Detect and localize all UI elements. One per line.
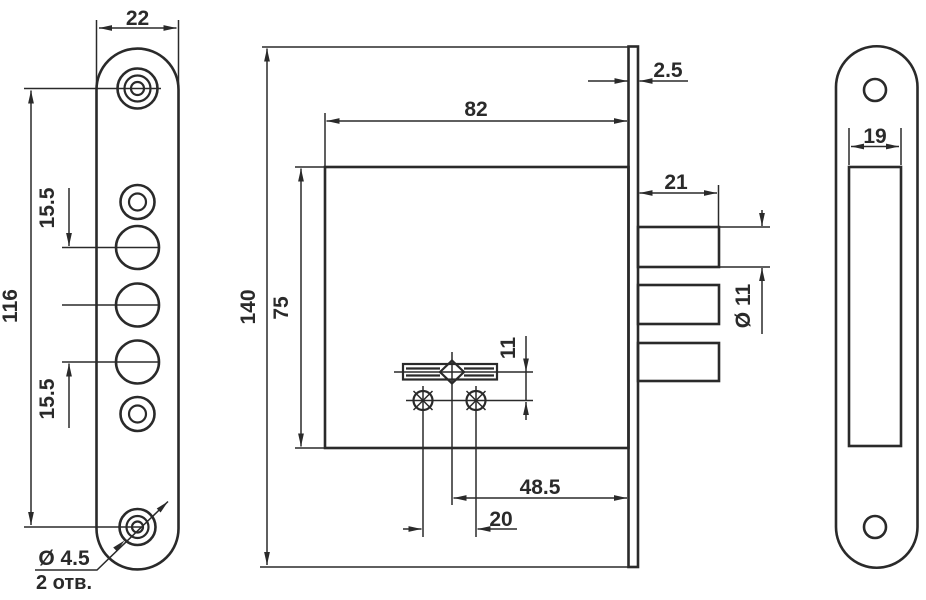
strike-screw-hole-top <box>864 79 886 101</box>
strike-cutout <box>849 167 901 446</box>
note-screw-hole-diameter: Ø 4.5 <box>38 547 90 570</box>
strike-screw-hole-bottom <box>864 516 886 538</box>
bolt-1 <box>638 227 719 267</box>
dim-hole-spacing-upper: 15.5 <box>36 187 59 228</box>
technical-drawing-canvas: 22 116 15.5 15.5 Ø 4.5 2 отв. <box>0 0 926 600</box>
bolt-2 <box>638 285 719 324</box>
faceplate-view: 22 116 15.5 15.5 Ø 4.5 2 отв. <box>0 7 179 594</box>
dim-hole-spacing-lower: 15.5 <box>36 378 59 419</box>
note-screw-hole-count: 2 отв. <box>36 572 92 594</box>
dim-faceplate-hole-span: 116 <box>0 289 22 323</box>
dim-backset: 48.5 <box>520 476 561 499</box>
lock-body-view: 140 75 82 2.5 21 Ø 11 11 48.5 20 <box>237 47 770 568</box>
dim-bolt-diameter: Ø 11 <box>732 283 755 328</box>
dim-case-width: 82 <box>464 98 487 121</box>
bolt-3 <box>638 343 719 381</box>
ring-hole-lower-outer <box>121 397 155 431</box>
strike-plate-view: 19 <box>836 46 918 568</box>
dim-screw-spacing: 20 <box>489 508 512 531</box>
faceplate-edge-strip <box>629 47 639 568</box>
ring-hole-lower-inner <box>129 406 146 423</box>
ring-hole-upper-outer <box>121 185 155 219</box>
dim-cylinder-offset: 11 <box>497 337 520 360</box>
dim-body-height: 140 <box>237 289 260 324</box>
dim-faceplate-thickness: 2.5 <box>653 59 683 82</box>
dim-bolt-throw: 21 <box>664 171 688 194</box>
technical-drawing-page: 22 116 15.5 15.5 Ø 4.5 2 отв. <box>0 0 926 600</box>
faceplate-outline <box>97 49 179 570</box>
dim-faceplate-width: 22 <box>126 7 149 30</box>
ring-hole-upper-inner <box>129 194 146 211</box>
dim-cutout-width: 19 <box>863 125 886 148</box>
dim-case-height: 75 <box>270 296 293 320</box>
